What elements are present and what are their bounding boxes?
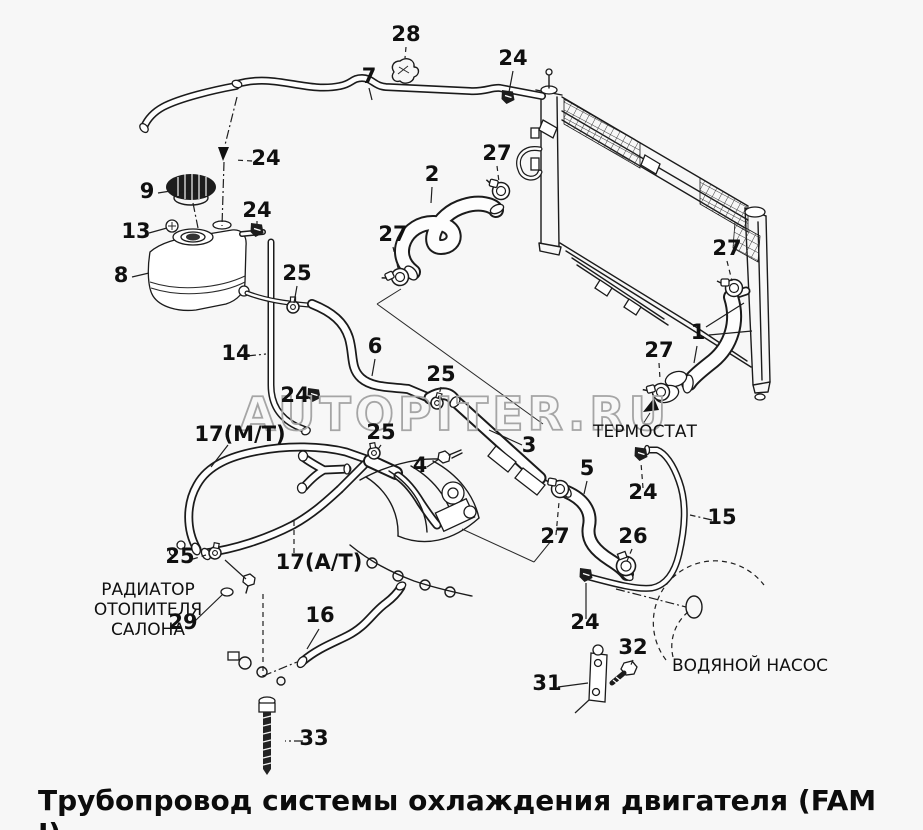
overflow-pipe-7: [138, 78, 542, 134]
callout-27d: 27: [644, 338, 673, 362]
callout-24c: 24: [242, 198, 271, 222]
label-thermostat: ТЕРМОСТАТ: [592, 422, 697, 442]
upper-radiator-hose-2: [402, 202, 505, 282]
callout-24b: 24: [251, 146, 280, 170]
label-heater-radiator-2: ОТОПИТЕЛЯ: [94, 600, 202, 620]
callout-24f: 24: [570, 610, 599, 634]
callout-25a: 25: [282, 261, 311, 285]
label-heater-radiator-3: САЛОНА: [111, 620, 185, 640]
callout-13: 13: [121, 219, 150, 243]
wire-clip-28: [392, 59, 418, 83]
callout-15: 15: [707, 505, 736, 529]
callout-14: 14: [221, 341, 250, 365]
callout-24a: 24: [498, 46, 527, 70]
lower-radiator-hose: [682, 297, 734, 394]
callout-28: 28: [391, 22, 420, 46]
callout-25b: 25: [426, 362, 455, 386]
callout-31: 31: [532, 671, 561, 695]
parts-diagram-page: AUTOPITER.RU 28 7 24 24 9 24 13 2 27 27 …: [0, 0, 923, 830]
callout-27c: 27: [712, 236, 741, 260]
label-heater-radiator-1: РАДИАТОР: [101, 580, 195, 600]
callout-17mt: 17(М/Т): [194, 422, 285, 446]
callout-24e: 24: [628, 480, 657, 504]
callout-5: 5: [580, 456, 595, 480]
callout-25d: 25: [165, 544, 194, 568]
callout-33: 33: [299, 726, 328, 750]
callout-17at: 17(А/Т): [276, 550, 363, 574]
callout-8: 8: [114, 263, 129, 287]
label-water-pump: ВОДЯНОЙ НАСОС: [672, 654, 828, 676]
callout-16: 16: [305, 603, 334, 627]
callout-6: 6: [368, 334, 383, 358]
callout-3: 3: [522, 433, 537, 457]
callout-24d: 24: [280, 383, 309, 407]
diagram-title: Трубопровод системы охлаждения двигателя…: [38, 784, 908, 830]
callout-27a: 27: [482, 141, 511, 165]
bolt-33: [259, 697, 275, 775]
callout-25c: 25: [366, 420, 395, 444]
diagram-canvas: AUTOPITER.RU 28 7 24 24 9 24 13 2 27 27 …: [0, 0, 923, 830]
callout-7: 7: [362, 64, 377, 88]
callout-4: 4: [413, 453, 428, 477]
bolt-32: [612, 661, 637, 684]
nut-29: [221, 574, 255, 596]
callout-27b: 27: [378, 222, 407, 246]
callout-27e: 27: [540, 524, 569, 548]
callout-9: 9: [140, 179, 155, 203]
expansion-tank: [148, 173, 263, 310]
callout-2: 2: [425, 162, 440, 186]
callout-32: 32: [618, 635, 647, 659]
bolt-4: [438, 450, 462, 463]
callout-1: 1: [691, 320, 706, 344]
water-pump-pipe-15: [589, 446, 684, 589]
pointer-arrow: [218, 147, 229, 161]
bracket-31: [575, 645, 607, 713]
callout-26: 26: [618, 524, 647, 548]
